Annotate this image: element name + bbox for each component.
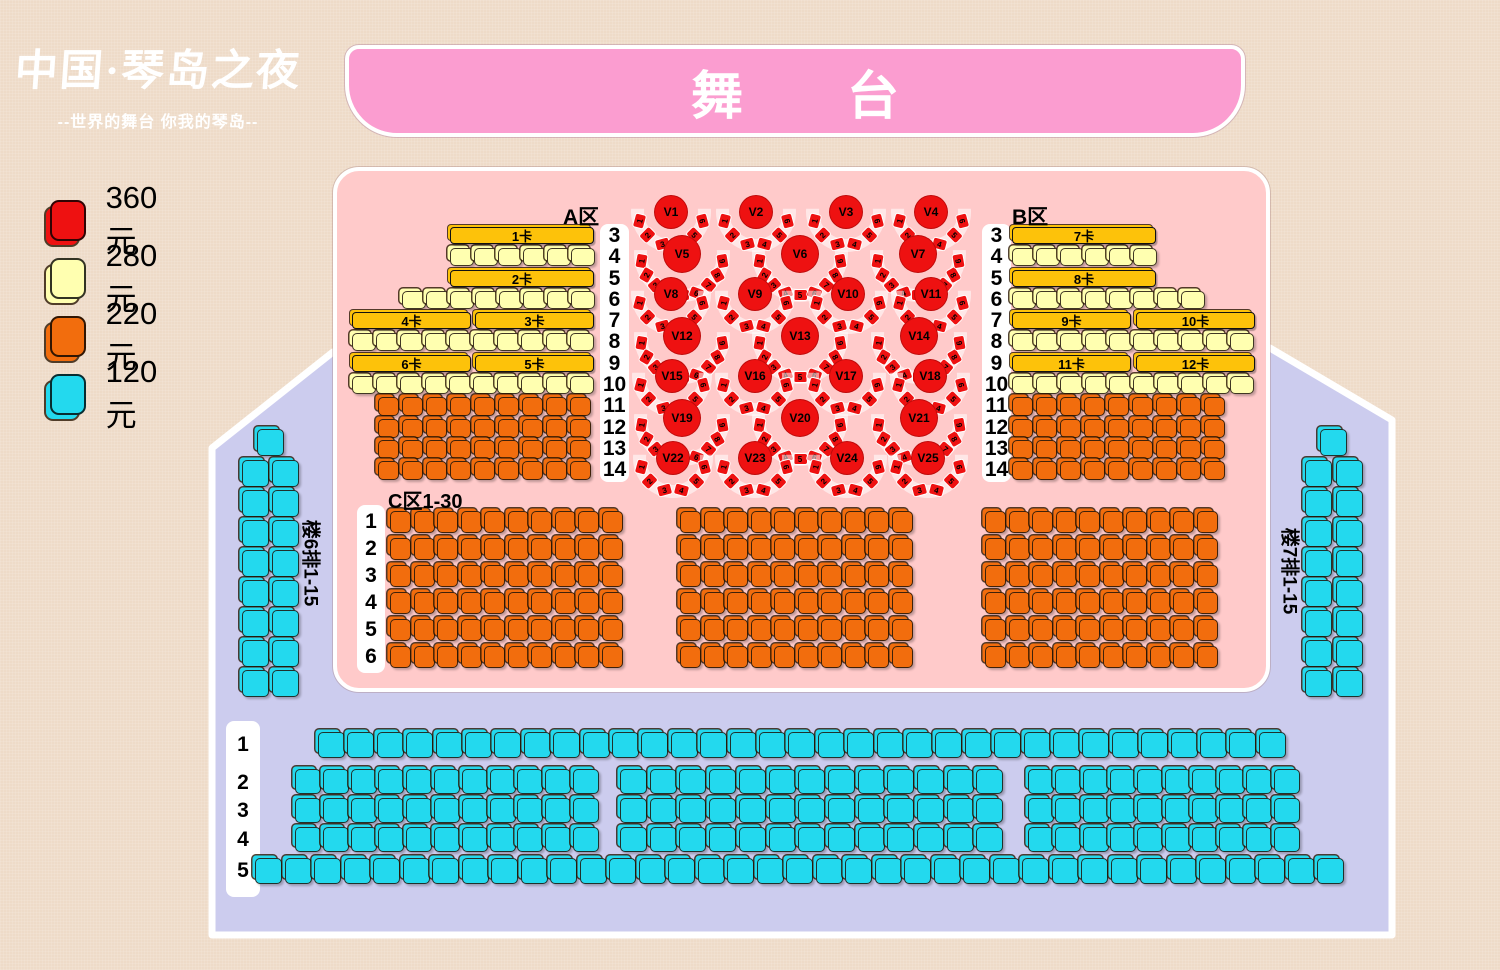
seat[interactable] (1060, 419, 1081, 438)
seat[interactable] (1156, 461, 1177, 480)
seat[interactable] (1108, 461, 1129, 480)
seat[interactable] (1140, 858, 1167, 884)
seat[interactable] (553, 732, 580, 758)
seat[interactable] (1009, 565, 1030, 587)
seat[interactable] (1336, 550, 1363, 577)
seat[interactable] (474, 461, 495, 480)
seat[interactable] (426, 397, 447, 416)
seat[interactable] (242, 460, 269, 487)
seat[interactable] (602, 619, 623, 641)
seat[interactable] (917, 827, 944, 852)
seat[interactable] (578, 565, 599, 587)
seat[interactable] (1219, 798, 1245, 823)
seat[interactable] (1336, 670, 1363, 697)
seat[interactable] (497, 376, 521, 394)
seat[interactable] (1082, 732, 1109, 758)
vip-arc-seat[interactable]: 9 (833, 417, 847, 434)
seat[interactable] (887, 769, 914, 794)
seat[interactable] (490, 769, 516, 794)
seat[interactable] (578, 511, 599, 533)
seat[interactable] (680, 646, 701, 668)
seat[interactable] (1110, 827, 1136, 852)
seat[interactable] (727, 511, 748, 533)
seat[interactable] (1056, 619, 1077, 641)
seat[interactable] (521, 858, 548, 884)
seat[interactable] (522, 440, 543, 459)
seat[interactable] (1173, 511, 1194, 533)
seat[interactable] (242, 520, 269, 547)
seat[interactable] (1133, 333, 1157, 351)
seat[interactable] (498, 419, 519, 438)
seat[interactable] (1246, 827, 1272, 852)
seat[interactable] (494, 732, 521, 758)
seat[interactable] (1036, 248, 1060, 266)
seat[interactable] (769, 798, 796, 823)
seat[interactable] (578, 538, 599, 560)
seat[interactable] (450, 461, 471, 480)
seat[interactable] (1204, 419, 1225, 438)
seat[interactable] (1036, 461, 1057, 480)
seat[interactable] (1173, 619, 1194, 641)
seat[interactable] (1079, 619, 1100, 641)
seat[interactable] (1109, 376, 1133, 394)
vip-arc-seat[interactable]: 9 (951, 253, 965, 270)
vip-table[interactable]: V16 (738, 359, 772, 393)
seat[interactable] (1079, 646, 1100, 668)
seat[interactable] (774, 646, 795, 668)
seat[interactable] (1197, 538, 1218, 560)
seat[interactable] (947, 769, 974, 794)
seat[interactable] (1180, 440, 1201, 459)
seat[interactable] (414, 646, 435, 668)
vip-table[interactable]: V1 (654, 195, 688, 229)
vip-table[interactable]: V3 (829, 195, 863, 229)
seat[interactable] (376, 333, 400, 351)
seat[interactable] (1056, 592, 1077, 614)
seat[interactable] (531, 592, 552, 614)
seat[interactable] (1056, 511, 1077, 533)
seat[interactable] (257, 429, 284, 456)
seat[interactable] (821, 619, 842, 641)
seat[interactable] (378, 440, 399, 459)
seat[interactable] (555, 538, 576, 560)
seat[interactable] (378, 419, 399, 438)
seat[interactable] (1109, 333, 1133, 351)
seat[interactable] (295, 827, 321, 852)
seat[interactable] (620, 798, 647, 823)
seat[interactable] (547, 291, 571, 309)
seat[interactable] (935, 732, 962, 758)
seat[interactable] (425, 333, 449, 351)
seat[interactable] (1032, 511, 1053, 533)
seat[interactable] (1259, 732, 1286, 758)
seat[interactable] (727, 858, 754, 884)
seat[interactable] (1032, 592, 1053, 614)
seat[interactable] (578, 619, 599, 641)
seat[interactable] (242, 640, 269, 667)
seat[interactable] (517, 769, 543, 794)
seat[interactable] (1055, 769, 1081, 794)
seat[interactable] (602, 511, 623, 533)
seat[interactable] (709, 827, 736, 852)
seat[interactable] (845, 565, 866, 587)
seat[interactable] (1180, 397, 1201, 416)
seat[interactable] (546, 397, 567, 416)
seat[interactable] (1009, 619, 1030, 641)
seat[interactable] (868, 538, 889, 560)
seat[interactable] (774, 538, 795, 560)
seat[interactable] (1336, 610, 1363, 637)
seat[interactable] (1133, 291, 1157, 309)
seat[interactable] (892, 565, 913, 587)
seat[interactable] (434, 798, 460, 823)
seat[interactable] (473, 333, 497, 351)
seat[interactable] (546, 333, 570, 351)
booth-bar[interactable]: 11卡 (1012, 355, 1131, 372)
seat[interactable] (1204, 440, 1225, 459)
seat[interactable] (1150, 511, 1171, 533)
seat[interactable] (759, 732, 786, 758)
seat[interactable] (323, 827, 349, 852)
seat[interactable] (378, 827, 404, 852)
seat[interactable] (272, 550, 299, 577)
seat[interactable] (1012, 461, 1033, 480)
seat[interactable] (1197, 592, 1218, 614)
seat[interactable] (1173, 646, 1194, 668)
seat[interactable] (351, 798, 377, 823)
seat[interactable] (639, 858, 666, 884)
seat[interactable] (1173, 592, 1194, 614)
seat[interactable] (1112, 732, 1139, 758)
seat[interactable] (550, 858, 577, 884)
seat[interactable] (1165, 827, 1191, 852)
seat[interactable] (1084, 397, 1105, 416)
seat[interactable] (679, 769, 706, 794)
seat[interactable] (774, 511, 795, 533)
seat[interactable] (798, 619, 819, 641)
seat[interactable] (578, 592, 599, 614)
seat[interactable] (318, 732, 345, 758)
seat[interactable] (609, 858, 636, 884)
seat[interactable] (671, 732, 698, 758)
vip-arc-seat[interactable]: 9 (715, 335, 729, 352)
seat[interactable] (1126, 619, 1147, 641)
seat[interactable] (1192, 798, 1218, 823)
seat[interactable] (555, 646, 576, 668)
seat[interactable] (1081, 858, 1108, 884)
seat[interactable] (578, 646, 599, 668)
seat[interactable] (295, 769, 321, 794)
seat[interactable] (1305, 520, 1332, 547)
seat[interactable] (555, 592, 576, 614)
seat[interactable] (352, 333, 376, 351)
seat[interactable] (450, 419, 471, 438)
seat[interactable] (1157, 291, 1181, 309)
seat[interactable] (531, 538, 552, 560)
seat[interactable] (406, 732, 433, 758)
vip-table[interactable]: V12 (663, 317, 701, 355)
seat[interactable] (347, 732, 374, 758)
seat[interactable] (1009, 538, 1030, 560)
seat[interactable] (570, 461, 591, 480)
seat[interactable] (426, 461, 447, 480)
seat[interactable] (1032, 565, 1053, 587)
seat[interactable] (242, 490, 269, 517)
seat[interactable] (1028, 827, 1054, 852)
seat[interactable] (1305, 550, 1332, 577)
seat[interactable] (1012, 419, 1033, 438)
vip-table[interactable]: V21 (900, 399, 938, 437)
vip-arc-seat[interactable]: 9 (715, 253, 729, 270)
seat[interactable] (377, 732, 404, 758)
seat[interactable] (531, 646, 552, 668)
seat[interactable] (1317, 858, 1344, 884)
seat[interactable] (679, 798, 706, 823)
seat[interactable] (845, 592, 866, 614)
seat[interactable] (985, 538, 1006, 560)
vip-table[interactable]: V7 (899, 235, 937, 273)
vip-table[interactable]: V11 (914, 277, 948, 311)
seat[interactable] (602, 592, 623, 614)
seat[interactable] (426, 440, 447, 459)
seat[interactable] (465, 732, 492, 758)
seat[interactable] (517, 827, 543, 852)
vip-table[interactable]: V5 (663, 235, 701, 273)
vip-arc-seat[interactable]: 9 (833, 335, 847, 352)
seat[interactable] (403, 858, 430, 884)
seat[interactable] (522, 397, 543, 416)
seat[interactable] (462, 827, 488, 852)
seat[interactable] (484, 538, 505, 560)
seat[interactable] (272, 490, 299, 517)
seat[interactable] (437, 592, 458, 614)
seat[interactable] (868, 511, 889, 533)
seat[interactable] (508, 592, 529, 614)
seat[interactable] (985, 592, 1006, 614)
seat[interactable] (484, 619, 505, 641)
seat[interactable] (1150, 538, 1171, 560)
seat[interactable] (1028, 798, 1054, 823)
seat[interactable] (868, 565, 889, 587)
seat[interactable] (390, 538, 411, 560)
seat[interactable] (531, 511, 552, 533)
seat[interactable] (1132, 419, 1153, 438)
vip-table[interactable]: V6 (781, 235, 819, 273)
seat[interactable] (1274, 827, 1300, 852)
seat[interactable] (845, 538, 866, 560)
seat[interactable] (426, 291, 450, 309)
seat[interactable] (730, 732, 757, 758)
vip-table[interactable]: V24 (830, 441, 864, 475)
seat[interactable] (1200, 732, 1227, 758)
seat[interactable] (1009, 592, 1030, 614)
seat[interactable] (704, 619, 725, 641)
seat[interactable] (739, 827, 766, 852)
seat[interactable] (1204, 397, 1225, 416)
seat[interactable] (798, 538, 819, 560)
seat[interactable] (1246, 769, 1272, 794)
seat[interactable] (917, 798, 944, 823)
seat[interactable] (821, 511, 842, 533)
seat[interactable] (531, 619, 552, 641)
seat[interactable] (1056, 565, 1077, 587)
seat[interactable] (1052, 858, 1079, 884)
seat[interactable] (774, 619, 795, 641)
seat[interactable] (1156, 440, 1177, 459)
seat[interactable] (1032, 538, 1053, 560)
seat[interactable] (1197, 646, 1218, 668)
seat[interactable] (1103, 565, 1124, 587)
seat[interactable] (437, 538, 458, 560)
seat[interactable] (378, 798, 404, 823)
vip-table[interactable]: V10 (831, 277, 865, 311)
seat[interactable] (976, 827, 1003, 852)
vip-table[interactable]: V19 (663, 399, 701, 437)
seat[interactable] (1060, 291, 1084, 309)
seat[interactable] (498, 440, 519, 459)
seat[interactable] (887, 798, 914, 823)
seat[interactable] (1084, 461, 1105, 480)
seat[interactable] (461, 565, 482, 587)
seat[interactable] (1126, 565, 1147, 587)
seat[interactable] (845, 646, 866, 668)
seat[interactable] (1126, 538, 1147, 560)
seat[interactable] (1305, 640, 1332, 667)
seat[interactable] (985, 565, 1006, 587)
seat[interactable] (1229, 858, 1256, 884)
seat[interactable] (314, 858, 341, 884)
seat[interactable] (1156, 397, 1177, 416)
seat[interactable] (272, 580, 299, 607)
vip-table[interactable]: V17 (829, 359, 863, 393)
seat[interactable] (255, 858, 282, 884)
seat[interactable] (462, 858, 489, 884)
seat[interactable] (1103, 592, 1124, 614)
seat[interactable] (461, 592, 482, 614)
seat[interactable] (709, 769, 736, 794)
seat[interactable] (821, 538, 842, 560)
seat[interactable] (1258, 858, 1285, 884)
seat[interactable] (668, 858, 695, 884)
seat[interactable] (242, 670, 269, 697)
seat[interactable] (1055, 798, 1081, 823)
seat[interactable] (847, 732, 874, 758)
seat[interactable] (1055, 827, 1081, 852)
seat[interactable] (1036, 333, 1060, 351)
seat[interactable] (570, 397, 591, 416)
seat[interactable] (976, 769, 1003, 794)
seat[interactable] (650, 769, 677, 794)
seat[interactable] (680, 511, 701, 533)
seat[interactable] (1126, 646, 1147, 668)
booth-bar[interactable]: 12卡 (1136, 355, 1255, 372)
seat[interactable] (1230, 376, 1254, 394)
seat[interactable] (1103, 511, 1124, 533)
seat[interactable] (868, 619, 889, 641)
vip-table[interactable]: V13 (781, 317, 819, 355)
seat[interactable] (798, 565, 819, 587)
seat[interactable] (1060, 461, 1081, 480)
seat[interactable] (798, 511, 819, 533)
seat[interactable] (1012, 248, 1036, 266)
seat[interactable] (698, 858, 725, 884)
vip-arc-seat[interactable]: 9 (952, 417, 966, 434)
seat[interactable] (295, 798, 321, 823)
seat[interactable] (522, 461, 543, 480)
booth-bar[interactable]: 4卡 (352, 312, 471, 329)
seat[interactable] (875, 858, 902, 884)
seat[interactable] (1181, 291, 1205, 309)
seat[interactable] (473, 376, 497, 394)
seat[interactable] (994, 732, 1021, 758)
seat[interactable] (1036, 419, 1057, 438)
seat[interactable] (892, 538, 913, 560)
seat[interactable] (602, 538, 623, 560)
seat[interactable] (406, 827, 432, 852)
seat[interactable] (484, 592, 505, 614)
seat[interactable] (498, 461, 519, 480)
seat[interactable] (887, 827, 914, 852)
vip-table[interactable]: V15 (655, 359, 689, 393)
seat[interactable] (963, 858, 990, 884)
seat[interactable] (1060, 397, 1081, 416)
seat[interactable] (376, 376, 400, 394)
seat[interactable] (323, 769, 349, 794)
seat[interactable] (546, 419, 567, 438)
seat[interactable] (1060, 248, 1084, 266)
seat[interactable] (993, 858, 1020, 884)
seat[interactable] (1219, 769, 1245, 794)
seat[interactable] (414, 538, 435, 560)
seat[interactable] (402, 397, 423, 416)
seat[interactable] (402, 291, 426, 309)
seat[interactable] (769, 827, 796, 852)
vip-arc-seat[interactable]: 9 (833, 253, 847, 270)
seat[interactable] (555, 511, 576, 533)
seat[interactable] (1173, 538, 1194, 560)
seat[interactable] (751, 538, 772, 560)
seat[interactable] (1157, 333, 1181, 351)
seat[interactable] (491, 858, 518, 884)
seat[interactable] (1108, 419, 1129, 438)
seat[interactable] (406, 769, 432, 794)
seat[interactable] (1060, 376, 1084, 394)
seat[interactable] (650, 798, 677, 823)
seat[interactable] (739, 798, 766, 823)
seat[interactable] (570, 440, 591, 459)
seat[interactable] (1079, 511, 1100, 533)
seat[interactable] (1181, 333, 1205, 351)
seat[interactable] (499, 291, 523, 309)
seat[interactable] (985, 646, 1006, 668)
seat[interactable] (934, 858, 961, 884)
seat[interactable] (524, 732, 551, 758)
seat[interactable] (1108, 440, 1129, 459)
seat[interactable] (1150, 592, 1171, 614)
seat[interactable] (845, 858, 872, 884)
seat[interactable] (1170, 858, 1197, 884)
seat[interactable] (1079, 538, 1100, 560)
seat[interactable] (390, 619, 411, 641)
seat[interactable] (1012, 291, 1036, 309)
seat[interactable] (1060, 333, 1084, 351)
seat[interactable] (751, 592, 772, 614)
seat[interactable] (679, 827, 706, 852)
seat[interactable] (1012, 376, 1036, 394)
seat[interactable] (461, 646, 482, 668)
seat[interactable] (1009, 646, 1030, 668)
seat[interactable] (818, 732, 845, 758)
